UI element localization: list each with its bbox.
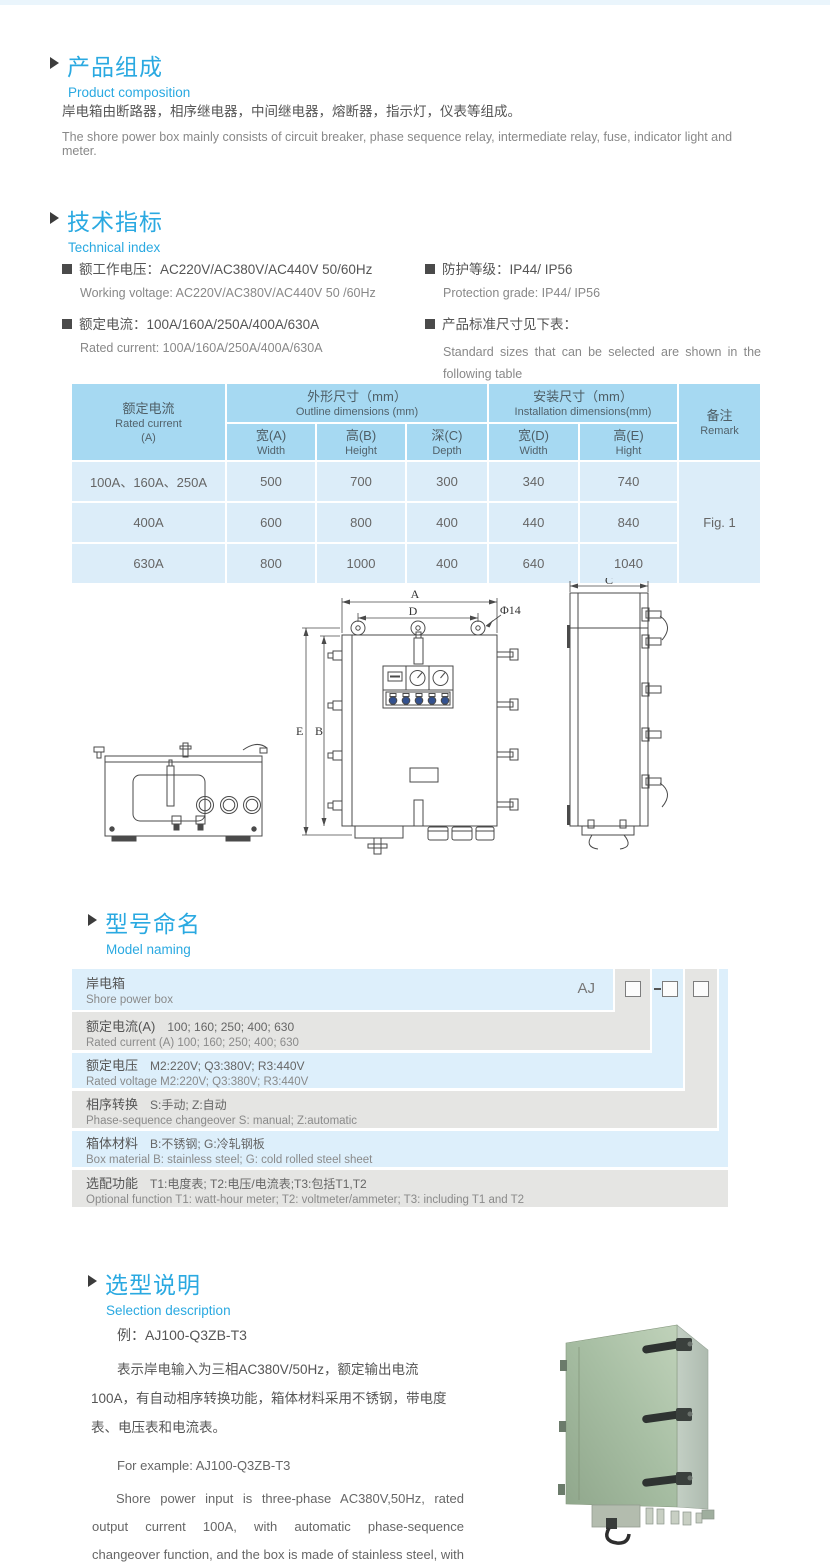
section-title: 型号命名 (105, 911, 201, 937)
code-dash-icon (654, 988, 661, 990)
table-row: 100A、160A、250A 500 700 300 340 740 Fig. … (71, 461, 761, 502)
model-row-phase-sequence: 相序转换S:手动; Z:自动 Phase-sequence changeover… (72, 1091, 717, 1128)
dim-label-c: C (605, 578, 613, 587)
square-bullet-icon (425, 264, 435, 274)
section-subtitle: Technical index (68, 240, 163, 255)
cell-value: 440 (488, 502, 579, 543)
technical-drawings: A D Φ14 E B (0, 578, 830, 878)
cell-value: 600 (226, 502, 316, 543)
cell-value: 500 (226, 461, 316, 502)
catalog-page: 产品组成 Product composition 岸电箱由断路器，相序继电器，中… (0, 0, 830, 1568)
section-header-model-naming: 型号命名 Model naming (88, 905, 201, 957)
model-row-optional-function: 选配功能T1:电度表; T2:电压/电流表;T3:包括T1,T2 Optiona… (72, 1170, 728, 1207)
front-view-dimensions (302, 598, 501, 835)
spec-protection-grade-en: Protection grade: IP44/ IP56 (443, 286, 600, 300)
section-header-selection: 选型说明 Selection description (88, 1266, 231, 1318)
cell-value: 800 (316, 502, 406, 543)
model-row-box-material: 箱体材料B:不锈钢; G:冷轧钢板 Box material B: stainl… (72, 1131, 728, 1167)
side-view (569, 593, 668, 849)
cell-value: 840 (579, 502, 678, 543)
cell-value: 740 (579, 461, 678, 502)
th-depth-c: 深(C)Depth (406, 423, 488, 461)
section-header-composition: 产品组成 Product composition (50, 48, 190, 100)
section-marker-icon (88, 1275, 97, 1287)
square-bullet-icon (62, 264, 72, 274)
spec-rated-current-en: Rated current: 100A/160A/250A/400A/630A (80, 341, 323, 355)
section-title: 选型说明 (105, 1272, 201, 1298)
cell-current: 400A (71, 502, 226, 543)
front-view (328, 621, 518, 854)
selection-example-en: For example: AJ100-Q3ZB-T3 (117, 1458, 290, 1473)
dim-label-hole: Φ14 (500, 603, 521, 617)
th-rated-current: 额定电流 Rated current (A) (71, 383, 226, 461)
cell-value: 340 (488, 461, 579, 502)
table-row: 400A 600 800 400 440 840 (71, 502, 761, 543)
model-row-rated-voltage: 额定电压M2:220V; Q3:380V; R3:440V Rated volt… (72, 1053, 683, 1088)
spec-standard-sizes: 产品标准尺寸见下表： (425, 313, 577, 334)
square-bullet-icon (62, 319, 72, 329)
dim-label-e: E (296, 724, 303, 738)
composition-body-zh: 岸电箱由断路器，相序继电器，中间继电器，熔断器，指示灯，仪表等组成。 (62, 100, 762, 120)
section-marker-icon (88, 914, 97, 926)
selection-desc-en: Shore power input is three-phase AC380V,… (92, 1485, 464, 1568)
model-prefix: AJ (577, 980, 595, 997)
composition-body-en: The shore power box mainly consists of c… (62, 130, 762, 158)
selection-example-zh: 例：AJ100-Q3ZB-T3 (117, 1325, 247, 1345)
section-subtitle: Product composition (68, 85, 190, 100)
section-title: 产品组成 (67, 54, 163, 80)
th-width-a: 宽(A)Width (226, 423, 316, 461)
section-subtitle: Selection description (106, 1303, 231, 1318)
photo-bottom-hardware (592, 1505, 714, 1543)
selection-desc-zh: 表示岸电输入为三相AC380V/50Hz，额定输出电流100A，有自动相序转换功… (91, 1355, 463, 1442)
code-box-icon (625, 981, 641, 997)
th-remark: 备注 Remark (678, 383, 761, 461)
square-bullet-icon (425, 319, 435, 329)
spec-working-voltage: 额工作电压：AC220V/AC380V/AC440V 50/60Hz (62, 258, 372, 279)
cell-remark: Fig. 1 (678, 461, 761, 584)
dim-label-d: D (409, 604, 418, 618)
section-title: 技术指标 (67, 209, 163, 235)
cell-value: 400 (406, 502, 488, 543)
th-width-d: 宽(D)Width (488, 423, 579, 461)
product-photo (530, 1300, 810, 1568)
code-box-icon (662, 981, 678, 997)
section-marker-icon (50, 212, 59, 224)
th-outline-dimensions: 外形尺寸（mm） Outline dimensions (mm) (226, 383, 488, 423)
dim-label-a: A (411, 587, 420, 601)
cell-current: 100A、160A、250A (71, 461, 226, 502)
model-row-rated-current: 额定电流(A)100; 160; 250; 400; 630 Rated cur… (72, 1012, 650, 1050)
section-subtitle: Model naming (106, 942, 201, 957)
cell-value: 700 (316, 461, 406, 502)
spec-standard-sizes-en: Standard sizes that can be selected are … (443, 341, 761, 385)
model-naming-diagram: 岸电箱 Shore power box AJ 额定电流(A)100; 160; … (72, 969, 728, 1207)
cell-value: 300 (406, 461, 488, 502)
dimensions-table: 额定电流 Rated current (A) 外形尺寸（mm） Outline … (70, 382, 762, 585)
section-marker-icon (50, 57, 59, 69)
spec-protection-grade: 防护等级：IP44/ IP56 (425, 258, 573, 279)
bottom-view (94, 743, 267, 841)
spec-rated-current: 额定电流：100A/160A/250A/400A/630A (62, 313, 319, 334)
th-height-e: 高(E)Hight (579, 423, 678, 461)
page-top-strip (0, 0, 830, 5)
dim-label-b: B (315, 724, 323, 738)
code-box-icon (693, 981, 709, 997)
photo-hinges (558, 1360, 567, 1495)
model-row-shore-power-box: 岸电箱 Shore power box AJ (72, 969, 613, 1010)
th-height-b: 高(B)Height (316, 423, 406, 461)
spec-working-voltage-en: Working voltage: AC220V/AC380V/AC440V 50… (80, 286, 376, 300)
section-header-technical: 技术指标 Technical index (50, 203, 163, 255)
th-installation-dimensions: 安装尺寸（mm） Installation dimensions(mm) (488, 383, 678, 423)
